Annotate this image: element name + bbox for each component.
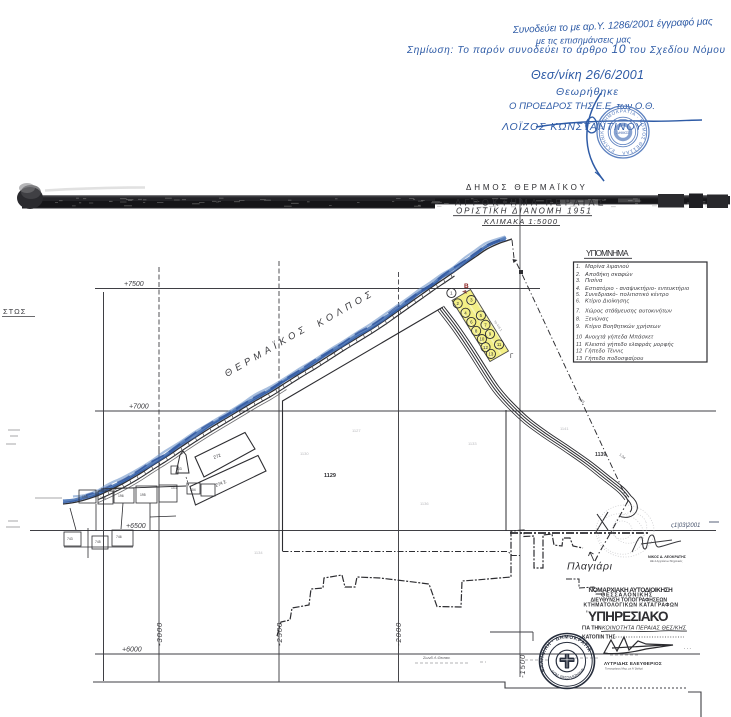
svg-text:274 Σ: 274 Σ [215,479,228,488]
svg-text:11: 11 [576,342,582,348]
svg-text:743: 743 [67,537,73,541]
svg-text:. . .: . . . [684,645,691,651]
svg-text:ΚΤΗΜΑΤΟΛΟΓΙΚΩΝ ΚΑΤΑΓΡΑΦΩΝ: ΚΤΗΜΑΤΟΛΟΓΙΚΩΝ ΚΑΤΑΓΡΑΦΩΝ [584,603,679,609]
svg-text:ΣΤΩΣ: ΣΤΩΣ [3,307,26,316]
svg-text:1130: 1130 [300,451,309,456]
svg-text:1127: 1127 [352,428,361,433]
svg-text:1133: 1133 [468,441,477,446]
svg-text:903: 903 [176,467,182,471]
svg-text:13: 13 [488,352,493,357]
svg-text:272: 272 [213,453,222,460]
svg-text:7.: 7. [576,309,581,315]
svg-text:ΥΠΗΡΕΣΙΑΚΟ: ΥΠΗΡΕΣΙΑΚΟ [588,609,670,624]
svg-text:2.: 2. [575,272,581,278]
svg-text:+7500: +7500 [124,281,144,288]
svg-text:5.: 5. [576,292,581,298]
svg-text:6.: 6. [576,299,581,305]
svg-text:195: 195 [140,493,146,497]
svg-text:199: 199 [82,495,88,499]
svg-text:ς1|03|2001: ς1|03|2001 [671,523,700,529]
svg-text:10: 10 [576,335,582,341]
svg-text:-2000: -2000 [394,622,403,646]
svg-text:Εστιατόριο - αναψυκτήριο- εντε: Εστιατόριο - αναψυκτήριο- εντευκτήριο [585,285,689,292]
svg-text:Τοπογράφος Μηχ. με Α' βαθμό: Τοπογράφος Μηχ. με Α' βαθμό [605,667,643,671]
svg-text:Κλειστό γήπεδο ελαφράς μορφής: Κλειστό γήπεδο ελαφράς μορφής [585,341,674,348]
svg-text:746: 746 [116,535,122,539]
svg-text:9.: 9. [576,324,581,330]
svg-text:Θεωρήθηκε: Θεωρήθηκε [556,86,618,98]
svg-text:Μαρίνα λιμανιού: Μαρίνα λιμανιού [585,263,629,270]
svg-text:1.: 1. [576,264,581,270]
svg-text:+7000: +7000 [129,404,149,411]
svg-text:Β: Β [464,283,469,290]
svg-text:1129: 1129 [324,473,336,479]
svg-text:ΥΠΟΜΝΗΜΑ: ΥΠΟΜΝΗΜΑ [586,249,630,258]
svg-text:198: 198 [100,496,106,500]
svg-text:Θεσ/νίκη 26/6/2001: Θεσ/νίκη 26/6/2001 [531,68,644,82]
svg-text:Σωνδ Λ.Θεσσα.: Σωνδ Λ.Θεσσα. [422,655,451,660]
svg-text:3.: 3. [576,278,581,284]
svg-text:Ανοιχτά γήπεδα Μπάσκετ: Ανοιχτά γήπεδα Μπάσκετ [584,334,654,341]
svg-text:Κτίριο Διοίκησης: Κτίριο Διοίκησης [585,299,629,305]
svg-text:Πισίνα: Πισίνα [585,278,603,284]
svg-text:12: 12 [483,345,488,350]
svg-text:+6500: +6500 [126,523,146,530]
svg-text:1G1: 1G1 [171,486,178,490]
svg-text:0.63: 0.63 [577,397,585,404]
svg-text:Συνεδριακό- πολιτιστικό κέντρο: Συνεδριακό- πολιτιστικό κέντρο [584,291,669,298]
svg-text:ΚΛΙΜΑΚΑ 1:5000: ΚΛΙΜΑΚΑ 1:5000 [484,217,558,226]
svg-text:Σημίωση: Το παρόν συνοδεύει το: Σημίωση: Το παρόν συνοδεύει το άρθρο 10 … [406,42,726,56]
svg-text:Γήπεδο Τέννις: Γήπεδο Τέννις [585,348,623,355]
svg-text:4.: 4. [576,286,581,292]
svg-text:13: 13 [576,356,582,362]
svg-text:Συνοδεύει το με αρ.Υ. 1286/200: Συνοδεύει το με αρ.Υ. 1286/2001 έγγραφό … [512,15,713,36]
svg-text:1141: 1141 [560,426,569,431]
svg-text:ΓΙΑ ΤΗΝ: ΓΙΑ ΤΗΝ [582,626,602,632]
svg-text:8.: 8. [576,317,581,323]
svg-text:ΔΗΜΟΣ: ΔΗΜΟΣ [616,131,630,135]
svg-text:745: 745 [95,540,101,544]
svg-text:10: 10 [479,337,484,342]
svg-text:-1500: -1500 [518,654,527,678]
svg-text:196: 196 [118,494,124,498]
svg-text:11: 11 [497,342,502,347]
svg-text:1139: 1139 [595,452,606,458]
svg-text:ΟΡΙΣΤΙΚΗ ΔΙΑΝΟΜΗ 1951: ΟΡΙΣΤΙΚΗ ΔΙΑΝΟΜΗ 1951 [456,207,592,216]
svg-text:1.04: 1.04 [618,453,626,460]
svg-text:-2500: -2500 [275,622,284,646]
svg-text:Αποθήκη σκαφών: Αποθήκη σκαφών [584,271,633,278]
svg-text:ΚΑΤΟΠΙΝ ΤΗΣ: ΚΑΤΟΠΙΝ ΤΗΣ [582,635,615,641]
svg-text:ΛΥΤΡΙΔΗΣ ΕΛΕΥΘΕΡΙΟΣ: ΛΥΤΡΙΔΗΣ ΕΛΕΥΘΕΡΙΟΣ [604,661,662,666]
svg-text:Γ: Γ [510,354,514,360]
svg-text:1136: 1136 [420,501,429,506]
svg-text:ΝΙΚΟΣ Δ. ΛΕΟΚΡΑΤΗΣ: ΝΙΚΟΣ Δ. ΛΕΟΚΡΑΤΗΣ [648,555,687,559]
svg-text:ΚΟΛΠΟΣ: ΚΟΛΠΟΣ [315,287,377,329]
svg-text:Πλαγιάρι: Πλαγιάρι [567,561,613,573]
svg-text:1134: 1134 [254,550,263,555]
svg-text:Γήπεδο ποδοσφαίρου: Γήπεδο ποδοσφαίρου [585,355,644,362]
svg-text:ΝΟΜ. ΘΕΣΣΑΛΟΝΙΚΗΣ: ΝΟΜ. ΘΕΣΣΑΛΟΝΙΚΗΣ [550,667,585,680]
svg-text:-3000: -3000 [155,622,164,646]
svg-text:Ξενώνας: Ξενώνας [584,316,609,323]
svg-text:12: 12 [576,349,582,355]
svg-text:+6000: +6000 [122,647,142,654]
svg-text:Κτίριο Βοηθητικών χρήσεων: Κτίριο Βοηθητικών χρήσεων [585,323,661,330]
svg-text:ΘΕ.4 Αρχιτέκτων Μηχανικός: ΘΕ.4 Αρχιτέκτων Μηχανικός [650,559,683,563]
svg-text:': ' [586,609,588,619]
svg-text:ΔΗΜΟΣ ΘΕΡΜΑΪΚΟΥ: ΔΗΜΟΣ ΘΕΡΜΑΪΚΟΥ [466,183,587,192]
svg-text:Χώρος στάθμευσης αυτοκινήτων: Χώρος στάθμευσης αυτοκινήτων [584,308,672,315]
